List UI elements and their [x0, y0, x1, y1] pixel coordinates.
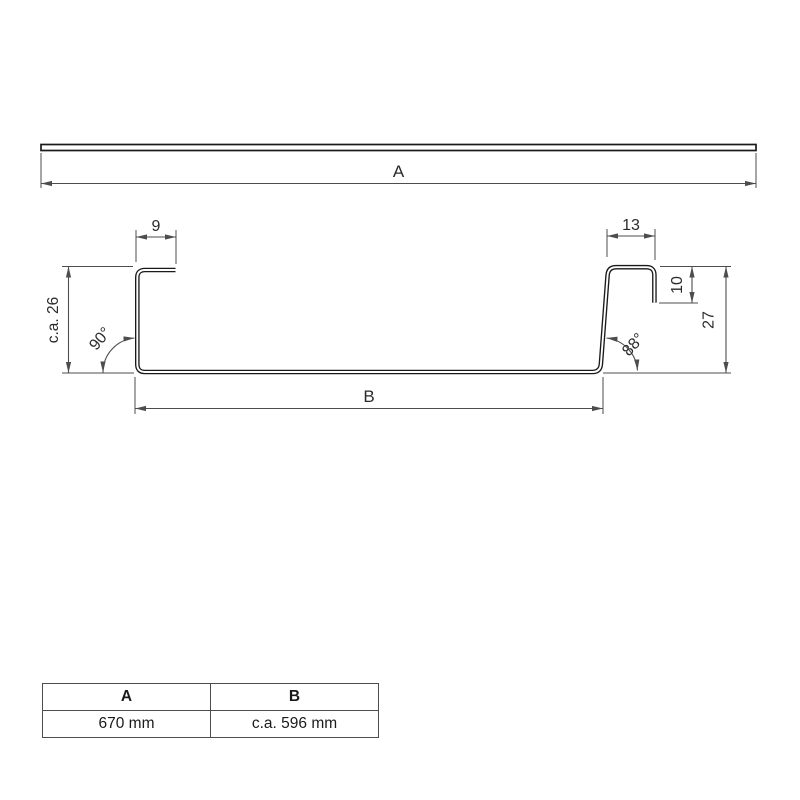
dim-right-lip-label: 13	[622, 217, 640, 234]
flat-sheet-bar	[41, 145, 756, 151]
table-value-a: 670 mm	[43, 711, 211, 738]
sheet-metal-profile-drawing: A 9 13 c.a. 26 90° B	[0, 0, 800, 800]
angle-left-label: 90°	[86, 324, 115, 353]
dimension-table: A B 670 mm c.a. 596 mm	[42, 683, 379, 738]
table-header-b: B	[211, 684, 379, 711]
profile-outline	[137, 267, 654, 372]
dim-a-label: A	[393, 162, 405, 181]
table-value-b: c.a. 596 mm	[211, 711, 379, 738]
table-header-row: A B	[43, 684, 379, 711]
table-value-row: 670 mm c.a. 596 mm	[43, 711, 379, 738]
profile-inner-line	[137, 267, 654, 372]
angle-left: 90°	[86, 324, 134, 372]
dim-base-label: B	[363, 387, 374, 406]
dim-left-lip: 9	[136, 218, 176, 264]
dim-left-height-label: c.a. 26	[45, 297, 62, 344]
flat-sheet-top-view: A	[41, 145, 756, 189]
dim-left-lip-label: 9	[152, 218, 161, 235]
dim-right-height-label: 27	[701, 311, 718, 329]
profile-cross-section	[137, 267, 654, 372]
angle-right: 88°	[603, 330, 731, 373]
dim-right-lip-drop-label: 10	[669, 276, 686, 294]
table-header-a: A	[43, 684, 211, 711]
angle-right-label: 88°	[619, 330, 648, 359]
dim-left-height: c.a. 26	[45, 267, 134, 374]
dim-right-lip-drop: 10	[659, 267, 698, 304]
dim-right-lip: 13	[607, 217, 655, 260]
dim-base: B	[135, 377, 603, 414]
dim-a: A	[41, 153, 756, 188]
